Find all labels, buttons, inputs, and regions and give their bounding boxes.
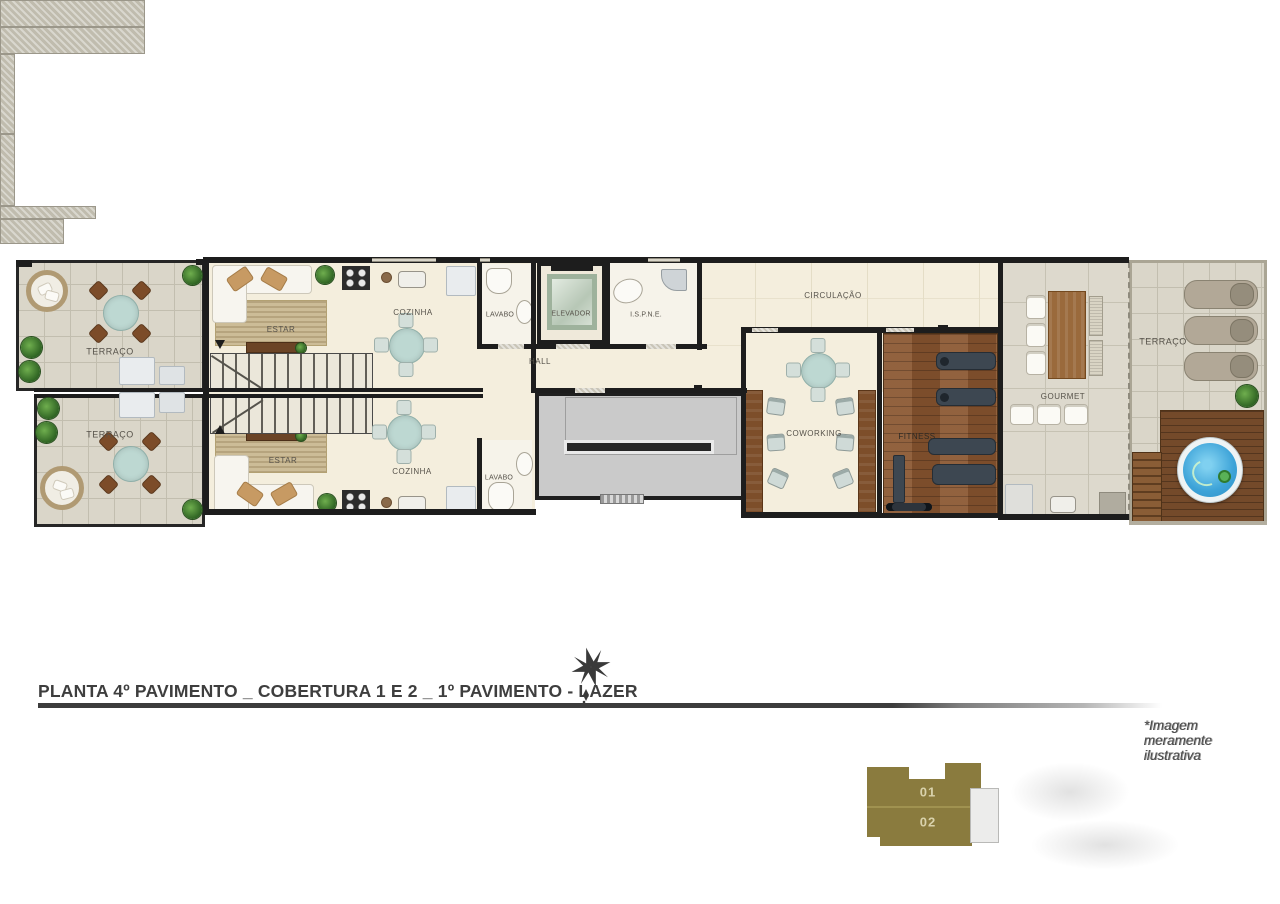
counter-bowl [381, 272, 392, 283]
room-label-elevador: ELEVADOR [551, 311, 590, 318]
bench [1089, 296, 1103, 336]
title-underline [38, 703, 1162, 708]
office-chair [766, 433, 785, 451]
sun-lounger [1184, 352, 1258, 381]
staircase-unit-02 [210, 396, 373, 434]
office-chair [766, 397, 786, 416]
room-label-gourmet: GOURMET [1041, 393, 1085, 401]
projection-dashed-line [1128, 262, 1130, 520]
treadmill [936, 352, 996, 370]
bench [1089, 340, 1103, 376]
washbasin [516, 452, 533, 476]
plant [183, 500, 202, 519]
treadmill [936, 388, 996, 406]
gourmet-cabinet [1005, 484, 1033, 515]
keyplan-divider [867, 806, 975, 808]
room-label-lavabo-1: LAVABO [486, 312, 514, 319]
lavabo-counter [0, 134, 15, 206]
lavabo-counter [0, 54, 15, 134]
keyplan-elevator-core [970, 788, 999, 843]
terrace-dining-set [98, 431, 162, 495]
pool-float-ring [1218, 470, 1231, 483]
terrace-dining-set [88, 280, 152, 344]
room-label-estar-1: ESTAR [267, 326, 296, 334]
terrace-equipment-box [159, 392, 185, 413]
coworking-round-table [786, 338, 850, 402]
barbell [886, 503, 932, 511]
bar-counter [0, 206, 96, 219]
plant [296, 343, 306, 353]
room-label-terraco-right: TERRAÇO [1139, 338, 1187, 347]
weight-rack [893, 455, 905, 503]
gourmet-counter [0, 219, 64, 244]
plant [1236, 385, 1258, 407]
vent-grille [600, 494, 644, 504]
refrigerator [446, 266, 476, 296]
plant [38, 398, 59, 419]
sun-lounger [1184, 280, 1258, 309]
plan-title: PLANTA 4º PAVIMENTO _ COBERTURA 1 E 2 _ … [38, 681, 638, 702]
plant [183, 266, 202, 285]
disclaimer-note: *Imagem meramente ilustrativa [1144, 718, 1212, 763]
gourmet-table [1048, 291, 1086, 379]
coworking-desk [745, 390, 763, 516]
void-beam [564, 440, 714, 454]
terrace-equipment-box [119, 357, 155, 385]
room-label-terraco-bl: TERRAÇO [86, 431, 134, 440]
kitchen-dining-set [374, 313, 438, 377]
plant [36, 422, 57, 443]
deck-steps [1132, 452, 1162, 524]
floor-mat [1099, 492, 1126, 515]
kitchen-sink [398, 271, 426, 288]
room-label-fitness: FITNESS [898, 433, 935, 441]
pool [1177, 437, 1243, 503]
compass-rose-icon [566, 645, 616, 703]
dining-chair [1026, 323, 1046, 347]
print-smudge [1010, 762, 1130, 822]
room-label-coworking: COWORKING [786, 430, 842, 438]
keyplan-unit-01: 01 [920, 785, 936, 800]
stair-direction-arrow [215, 425, 225, 434]
room-label-hall: HALL [529, 358, 551, 366]
bar-stool [1010, 404, 1034, 425]
stove [342, 266, 370, 290]
gourmet-sink [1050, 496, 1076, 513]
keyplan-tab [880, 837, 972, 846]
dining-chair [1026, 351, 1046, 375]
keyplan-tab [945, 763, 981, 780]
keyplan-unit-02: 02 [920, 815, 936, 830]
terrace-equipment-box [159, 366, 185, 385]
room-label-lavabo-2: LAVABO [485, 475, 513, 482]
print-smudge [1030, 820, 1180, 870]
key-plan: 01 02 [860, 756, 1020, 856]
kitchen-dining-set [372, 400, 436, 464]
kitchen-counter [0, 0, 145, 27]
weight-bench [928, 438, 996, 455]
dining-chair [1026, 295, 1046, 319]
coworking-desk [858, 390, 876, 516]
office-chair [835, 397, 855, 416]
toilet [488, 482, 514, 512]
room-label-circulacao: CIRCULAÇÃO [804, 292, 861, 300]
counter-bowl [381, 497, 392, 508]
room-label-ispne: I.S.P.N.E. [630, 312, 662, 319]
plant [21, 337, 42, 358]
floor-plan-page: TERRAÇO TERRAÇO ESTAR ESTAR COZINHA COZI… [0, 0, 1280, 904]
round-daybed [26, 270, 68, 312]
elevator-cab [547, 274, 597, 330]
kitchen-counter [0, 27, 145, 54]
room-label-terraco-tl: TERRAÇO [86, 348, 134, 357]
plant [19, 361, 40, 382]
room-label-cozinha-1: COZINHA [393, 309, 433, 317]
sun-lounger [1184, 316, 1258, 345]
room-label-cozinha-2: COZINHA [392, 468, 432, 476]
plant [316, 266, 334, 284]
terrace-equipment-box [119, 392, 155, 418]
room-label-estar-2: ESTAR [269, 457, 298, 465]
weight-bench [932, 464, 996, 485]
bar-stool [1037, 404, 1061, 425]
washbasin [486, 268, 512, 294]
round-daybed [40, 466, 84, 510]
stair-direction-arrow [215, 340, 225, 349]
bar-stool [1064, 404, 1088, 425]
